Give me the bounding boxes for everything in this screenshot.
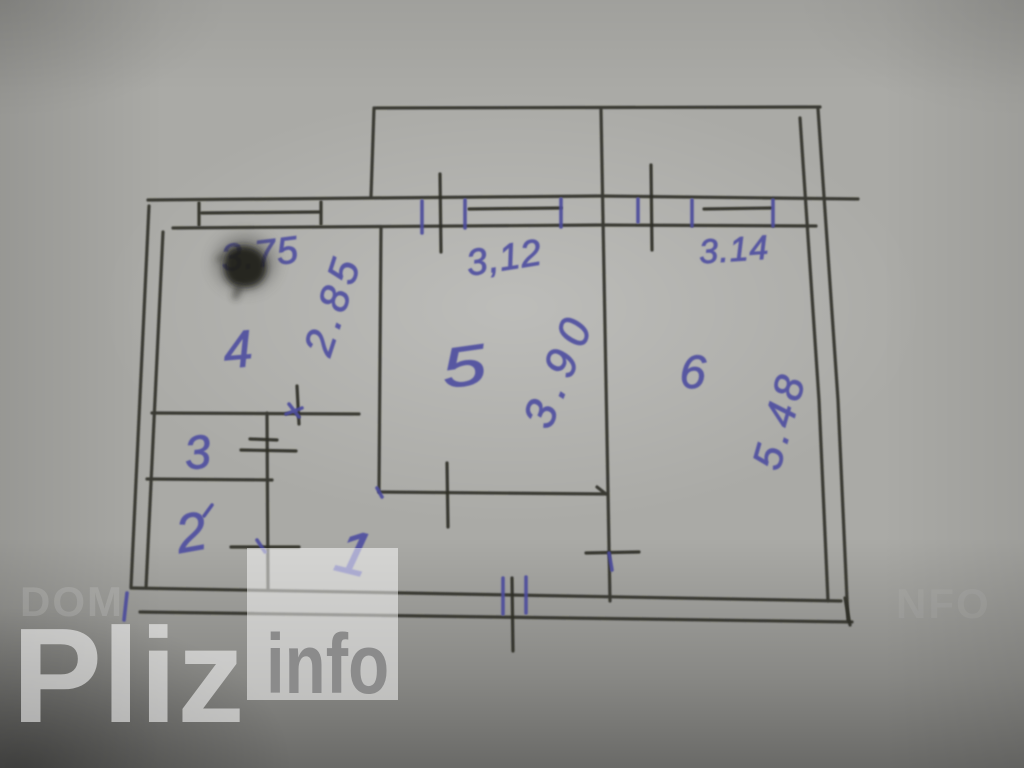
svg-text:3.14: 3.14 — [698, 229, 771, 272]
svg-text:3.90: 3.90 — [514, 304, 605, 435]
svg-text:6: 6 — [679, 344, 708, 398]
svg-text:5: 5 — [438, 332, 492, 401]
svg-text:3: 3 — [182, 424, 214, 479]
svg-text:2.85: 2.85 — [295, 248, 371, 362]
svg-text:5.48: 5.48 — [743, 366, 815, 475]
svg-text:4: 4 — [221, 320, 255, 380]
svg-text:3,12: 3,12 — [464, 231, 545, 283]
svg-text:2: 2 — [170, 501, 211, 565]
